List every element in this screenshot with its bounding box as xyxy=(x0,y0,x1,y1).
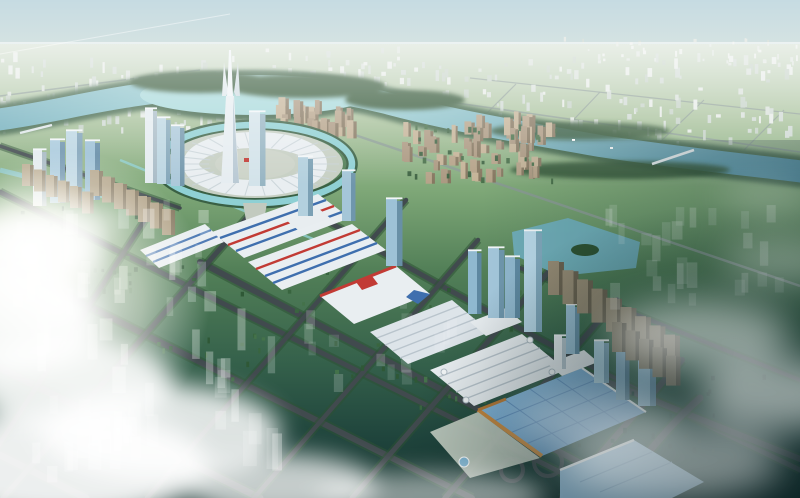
parcel-trees-mid xyxy=(361,365,364,370)
ghost-block-left-lower xyxy=(268,336,275,373)
aerial-rendering-canvas xyxy=(0,0,800,498)
parcel-trees-mid xyxy=(377,343,380,346)
parcel-trees-mid xyxy=(258,348,260,353)
cloud-wisp xyxy=(515,392,685,448)
ghost-block-mid xyxy=(329,335,339,347)
parcel-trees-mid xyxy=(246,362,249,367)
ghost-block-left-upper xyxy=(200,226,209,238)
parcel-trees-mid xyxy=(262,337,265,340)
parcel-trees-mid xyxy=(207,338,209,344)
distant-city-far-right xyxy=(745,39,748,42)
parcel-trees-mid xyxy=(295,309,299,313)
distant-city-far-right xyxy=(694,39,697,42)
cloud-wisp xyxy=(17,206,127,238)
parcel-trees-mid xyxy=(254,335,257,339)
ghost-block-mid xyxy=(334,374,343,392)
ghost-block-mid xyxy=(304,324,313,344)
ghost-block-left-lower xyxy=(237,308,245,350)
parcel-trees-mid xyxy=(231,377,234,381)
city-masterplan-rendering xyxy=(0,0,800,498)
parcel-trees-mid xyxy=(351,374,353,378)
ghost-block-left-upper xyxy=(198,210,208,223)
parcel-trees-mid xyxy=(302,302,305,305)
horizon-haze xyxy=(0,42,800,187)
ghost-block-left-lower xyxy=(206,352,213,385)
cloud-wisp xyxy=(610,301,790,369)
parcel-trees-mid xyxy=(335,370,339,374)
parcel-trees-mid xyxy=(288,290,291,294)
parcel-trees-mid xyxy=(241,292,244,297)
distant-city-far-right xyxy=(564,37,566,42)
